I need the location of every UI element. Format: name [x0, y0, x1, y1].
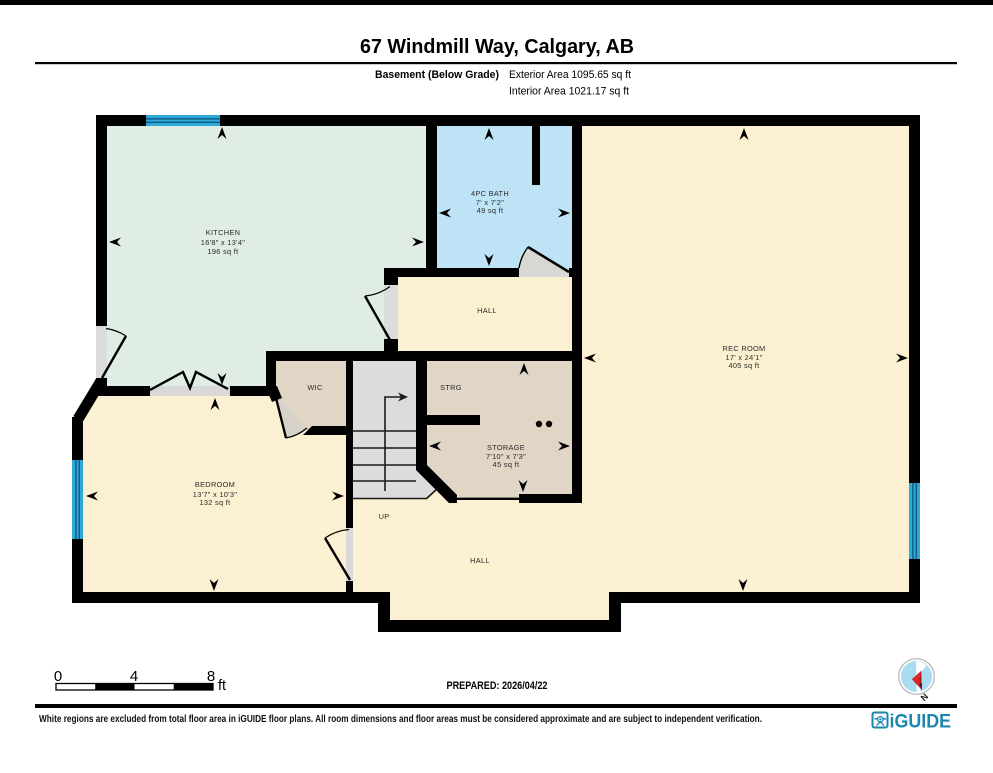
svg-text:STRG: STRG: [440, 383, 462, 392]
svg-text:0: 0: [54, 668, 62, 685]
svg-text:132 sq ft: 132 sq ft: [199, 498, 230, 507]
svg-text:HALL: HALL: [477, 306, 497, 315]
svg-text:White regions are excluded fro: White regions are excluded from total fl…: [39, 714, 762, 725]
svg-text:4PC BATH: 4PC BATH: [471, 189, 509, 198]
svg-text:PREPARED: 2026/04/22: PREPARED: 2026/04/22: [447, 680, 548, 692]
svg-text:REC ROOM: REC ROOM: [722, 344, 765, 353]
svg-text:BEDROOM: BEDROOM: [195, 480, 235, 489]
svg-text:ft: ft: [218, 678, 226, 694]
svg-text:Interior Area 1021.17 sq ft: Interior Area 1021.17 sq ft: [509, 86, 630, 98]
svg-text:KITCHEN: KITCHEN: [206, 228, 241, 237]
svg-text:UP: UP: [379, 512, 390, 521]
svg-text:405 sq ft: 405 sq ft: [728, 361, 759, 370]
svg-text:iGUIDE: iGUIDE: [890, 712, 952, 733]
svg-text:45 sq ft: 45 sq ft: [493, 460, 520, 469]
svg-text:STORAGE: STORAGE: [487, 443, 525, 452]
svg-text:WIC: WIC: [307, 383, 323, 392]
svg-text:4: 4: [130, 668, 138, 685]
svg-text:67 Windmill Way, Calgary, AB: 67 Windmill Way, Calgary, AB: [360, 36, 634, 58]
svg-text:Exterior Area 1095.65 sq ft: Exterior Area 1095.65 sq ft: [509, 69, 632, 81]
svg-text:49 sq ft: 49 sq ft: [477, 206, 504, 215]
svg-text:196 sq ft: 196 sq ft: [207, 247, 238, 256]
svg-text:HALL: HALL: [470, 556, 490, 565]
svg-text:16'8" x 13'4": 16'8" x 13'4": [201, 238, 246, 247]
svg-text:8: 8: [207, 668, 215, 685]
svg-text:Basement (Below Grade): Basement (Below Grade): [375, 69, 499, 81]
